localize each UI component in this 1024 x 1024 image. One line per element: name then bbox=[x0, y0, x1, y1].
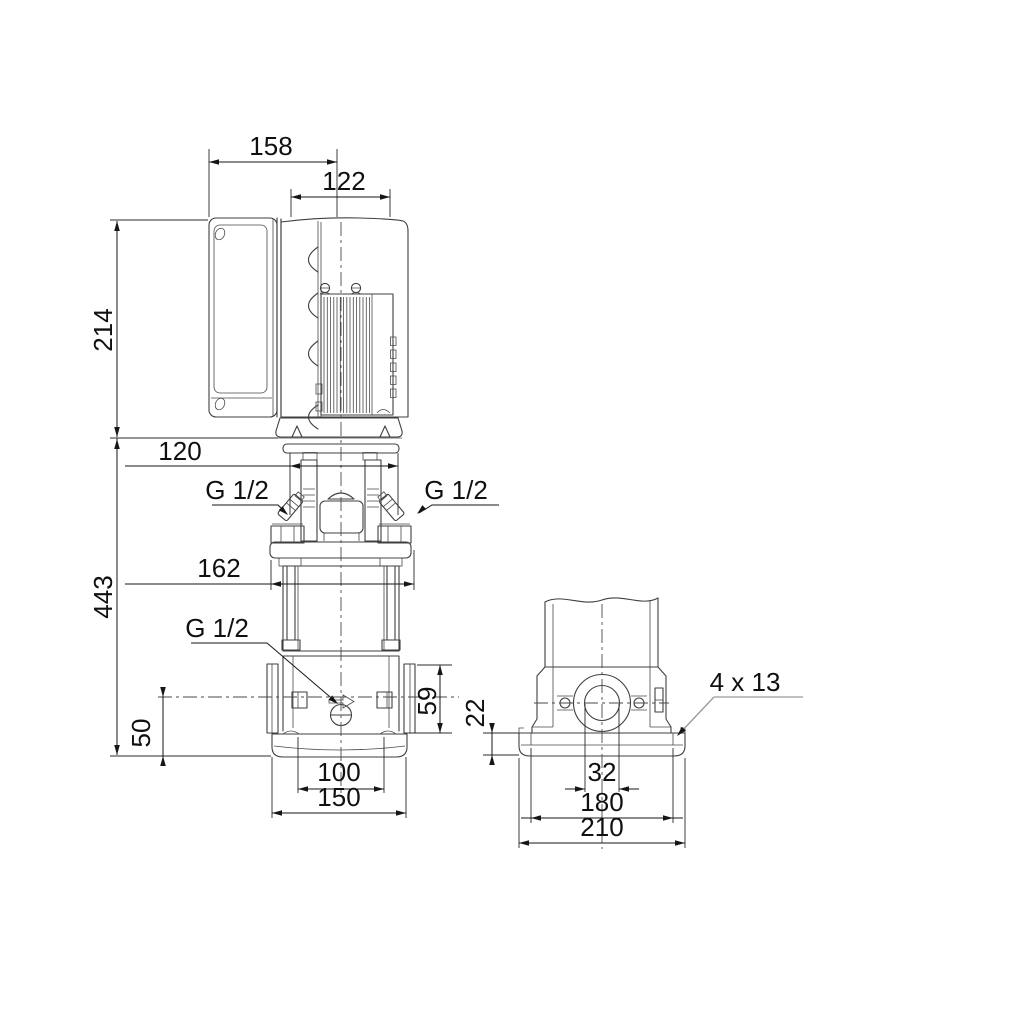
pump-dimensional-drawing-page: 158 122 214 443 bbox=[0, 0, 1024, 1024]
dim-210-label: 210 bbox=[580, 812, 623, 842]
cooling-fins bbox=[324, 297, 370, 413]
dim-158-label: 158 bbox=[249, 131, 292, 161]
drain-label: G 1/2 bbox=[185, 613, 249, 643]
dim-162-label: 162 bbox=[197, 553, 240, 583]
dim-59-label: 59 bbox=[412, 687, 442, 716]
vent-right-label: G 1/2 bbox=[424, 475, 488, 505]
drawing-background bbox=[0, 0, 1024, 1024]
base-holes-label: 4 x 13 bbox=[710, 667, 781, 697]
dim-120-label: 120 bbox=[158, 436, 201, 466]
vent-left-label: G 1/2 bbox=[205, 475, 269, 505]
pump-dimensional-drawing: 158 122 214 443 bbox=[0, 0, 1024, 1024]
dim-32-label: 32 bbox=[588, 757, 617, 787]
dim-150-label: 150 bbox=[317, 782, 360, 812]
dim-443-label: 443 bbox=[88, 575, 118, 618]
dim-214-label: 214 bbox=[88, 308, 118, 351]
dim-22-label: 22 bbox=[460, 699, 490, 728]
dim-50-label: 50 bbox=[126, 719, 156, 748]
dim-122-label: 122 bbox=[322, 166, 365, 196]
